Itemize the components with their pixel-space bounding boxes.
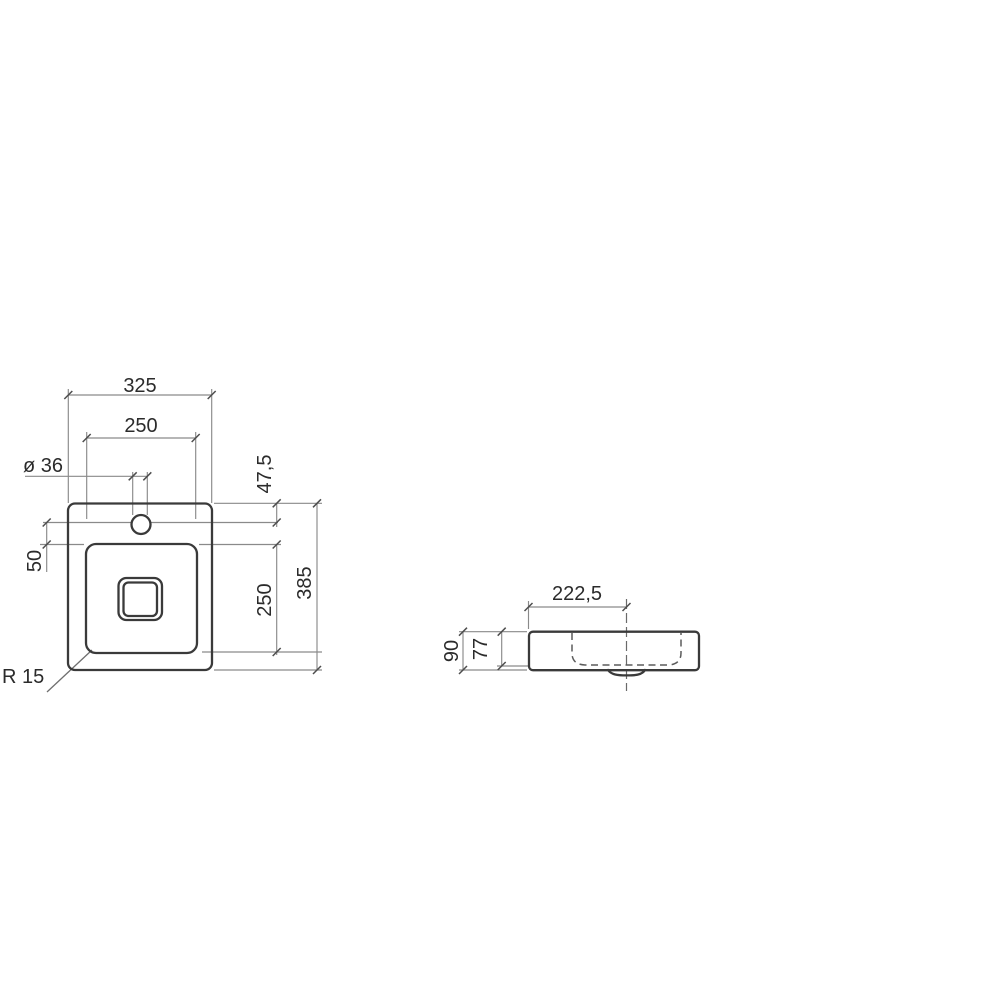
plan-drain-inner (124, 583, 158, 617)
dim-label-hole-diameter: ø 36 (23, 455, 63, 477)
dim-label-drain-offset: 222,5 (552, 583, 602, 605)
side-view: 222,5 90 77 (441, 583, 699, 691)
dim-label-corner-radius: R 15 (2, 666, 44, 688)
technical-drawing-canvas: 325 250 ø 36 47,5 50 250 385 R 15 (0, 0, 1000, 1000)
dim-label-basin-inner-depth: 77 (470, 638, 492, 660)
plan-basin-outline (86, 544, 197, 653)
plan-view: 325 250 ø 36 47,5 50 250 385 R 15 (2, 375, 322, 692)
dim-label-overall-width: 325 (123, 375, 156, 397)
drawing-page: 325 250 ø 36 47,5 50 250 385 R 15 (0, 0, 1000, 1000)
dim-label-basin-width: 250 (124, 415, 157, 437)
dim-label-overall-height: 90 (441, 640, 463, 662)
plan-dimension-lines (25, 389, 322, 692)
dim-label-hole-to-basin: 50 (24, 550, 46, 572)
plan-faucet-hole (132, 515, 151, 534)
dim-label-hole-offset: 47,5 (254, 455, 276, 494)
plan-dimension-ticks (43, 391, 321, 674)
dim-label-overall-depth: 385 (294, 566, 316, 599)
dim-label-basin-depth: 250 (254, 583, 276, 616)
